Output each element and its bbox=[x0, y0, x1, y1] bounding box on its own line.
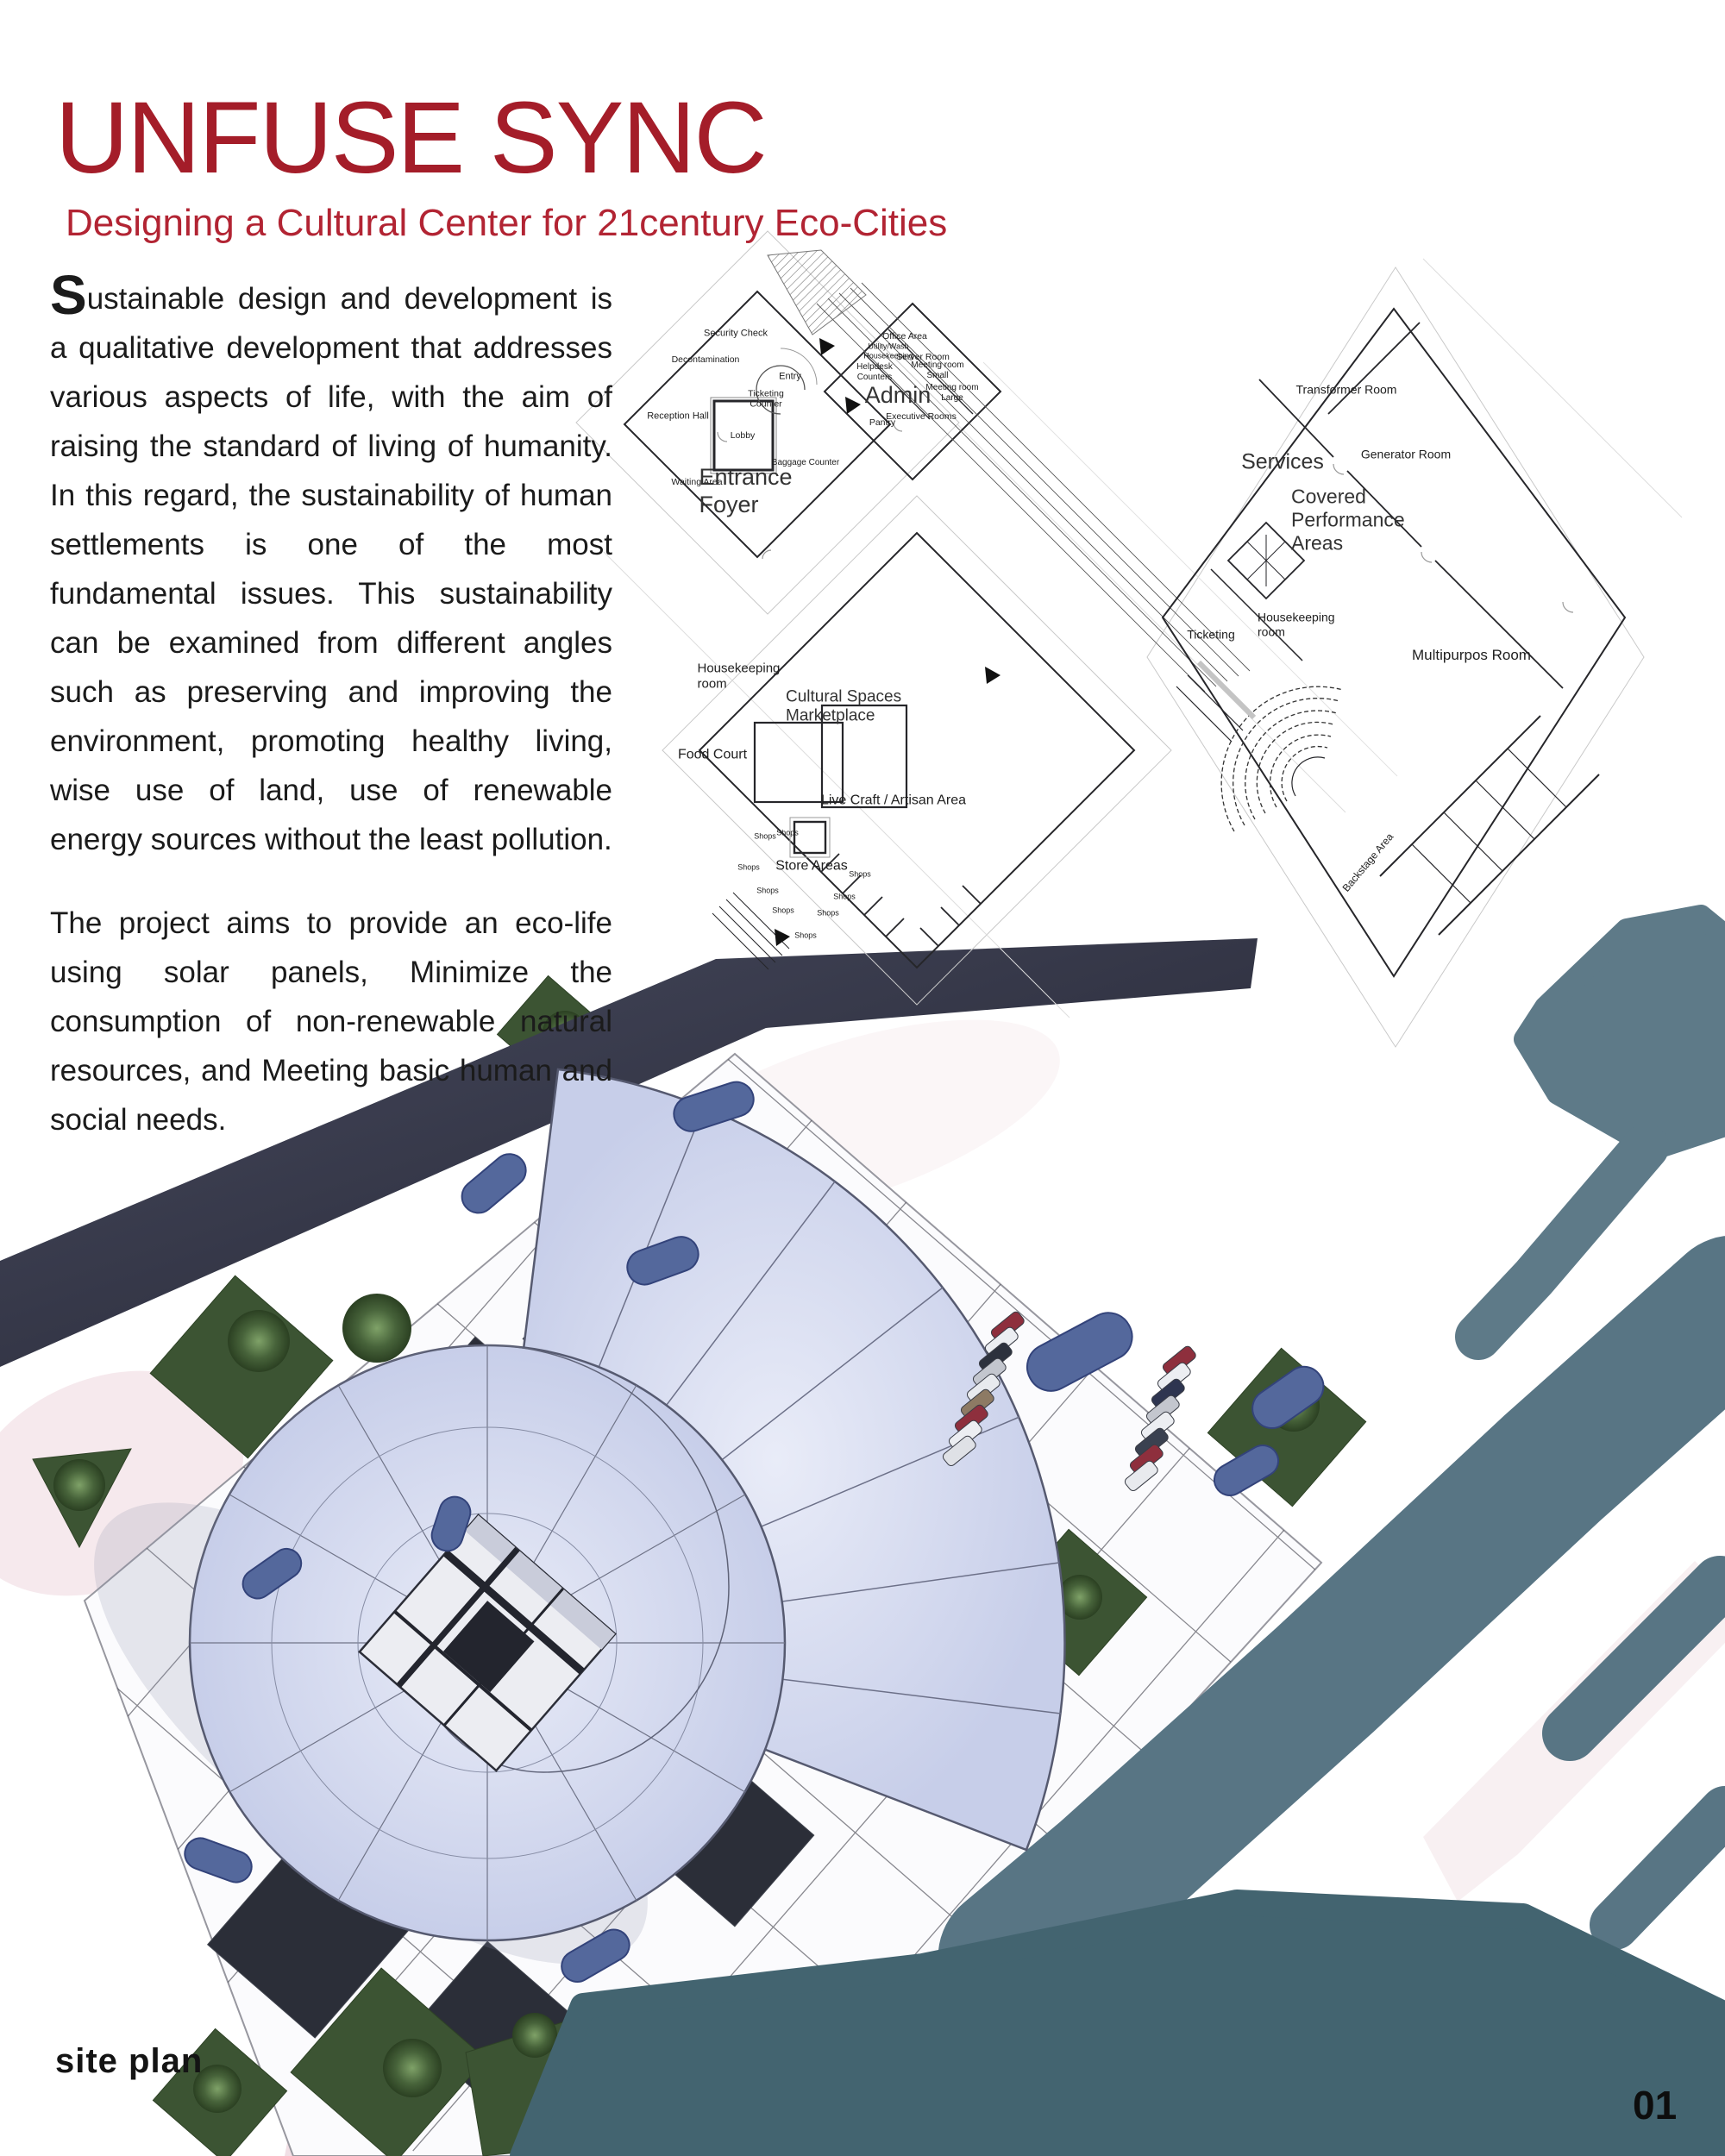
room-label-entrance-foyer: Entrance Foyer bbox=[699, 464, 816, 519]
room-label-office-area: Office Area bbox=[882, 331, 927, 342]
room-label-reception-hall: Reception Hall bbox=[647, 411, 709, 423]
room-label-shops: Shops bbox=[817, 909, 839, 918]
room-label-housekeeping-b: Housekeeping room bbox=[1258, 610, 1354, 638]
room-label-meeting-room-small: Meeting room Small bbox=[904, 360, 971, 381]
ticketing-ramp bbox=[1176, 662, 1254, 742]
room-label-helpdesk-counters: Helpdesk Counters bbox=[848, 362, 901, 383]
room-label-meeting-room-large: Meeting room Large bbox=[919, 383, 986, 404]
room-label-shops: Shops bbox=[754, 832, 776, 842]
stage-edge bbox=[1292, 757, 1325, 796]
room-label-live-craft: Live Craft / Artisan Area bbox=[821, 793, 966, 810]
drop-cap: S bbox=[50, 264, 87, 326]
room-label-ticketing: Ticketing bbox=[1187, 628, 1235, 642]
room-label-shops: Shops bbox=[849, 870, 871, 880]
paragraph-text: ustainable design and development is a q… bbox=[50, 282, 612, 856]
room-label-lobby: Lobby bbox=[731, 430, 756, 441]
room-label-covered-performance: Covered Performance Areas bbox=[1291, 485, 1421, 555]
page-subtitle: Designing a Cultural Center for 21centur… bbox=[66, 202, 947, 245]
room-label-shops: Shops bbox=[833, 893, 856, 902]
room-label-executive-rooms: Executive Rooms bbox=[886, 411, 957, 422]
room-label-services: Services bbox=[1241, 449, 1324, 475]
room-label-generator-room: Generator Room bbox=[1361, 448, 1451, 462]
marketplace-block bbox=[699, 533, 1134, 968]
amphitheater-seating bbox=[1221, 686, 1343, 831]
room-label-security-check: Security Check bbox=[704, 329, 768, 340]
room-label-entry: Entry bbox=[779, 372, 801, 383]
intro-paragraph-2: The project aims to provide an eco-life … bbox=[50, 899, 612, 1144]
room-label-food-court: Food Court bbox=[678, 748, 747, 764]
room-label-decontamination: Decontamination bbox=[672, 354, 740, 365]
room-label-transformer-room: Transformer Room bbox=[1296, 383, 1397, 398]
room-label-multipurpose: Multipurpos Room bbox=[1412, 647, 1531, 664]
room-label-shops: Shops bbox=[776, 829, 799, 838]
presentation-board: Security Check Decontamination Reception… bbox=[0, 0, 1725, 2156]
room-label-store-areas: Store Areas bbox=[775, 859, 848, 875]
room-label-housekeeping-a: Housekeeping room bbox=[698, 661, 797, 691]
page-title: UNFUSE SYNC bbox=[55, 79, 766, 197]
room-label-shops: Shops bbox=[737, 863, 760, 873]
room-label-cultural-spaces: Cultural Spaces Marketplace bbox=[786, 688, 967, 727]
room-label-shops: Shops bbox=[756, 887, 779, 896]
intro-text: Sustainable design and development is a … bbox=[50, 274, 612, 1144]
performance-floor-plan bbox=[1163, 309, 1625, 976]
intro-paragraph-1: Sustainable design and development is a … bbox=[50, 274, 612, 864]
site-plan-caption: site plan bbox=[55, 2042, 203, 2081]
page-number: 01 bbox=[1633, 2082, 1677, 2128]
performance-block bbox=[1163, 309, 1625, 976]
backstage-rooms bbox=[1380, 716, 1599, 935]
room-label-shops: Shops bbox=[772, 906, 794, 916]
room-label-ticketing-counter: Ticketing Counter bbox=[739, 389, 793, 411]
room-label-shops: Shops bbox=[794, 931, 817, 941]
plan-faint-outlines bbox=[576, 231, 1682, 1047]
